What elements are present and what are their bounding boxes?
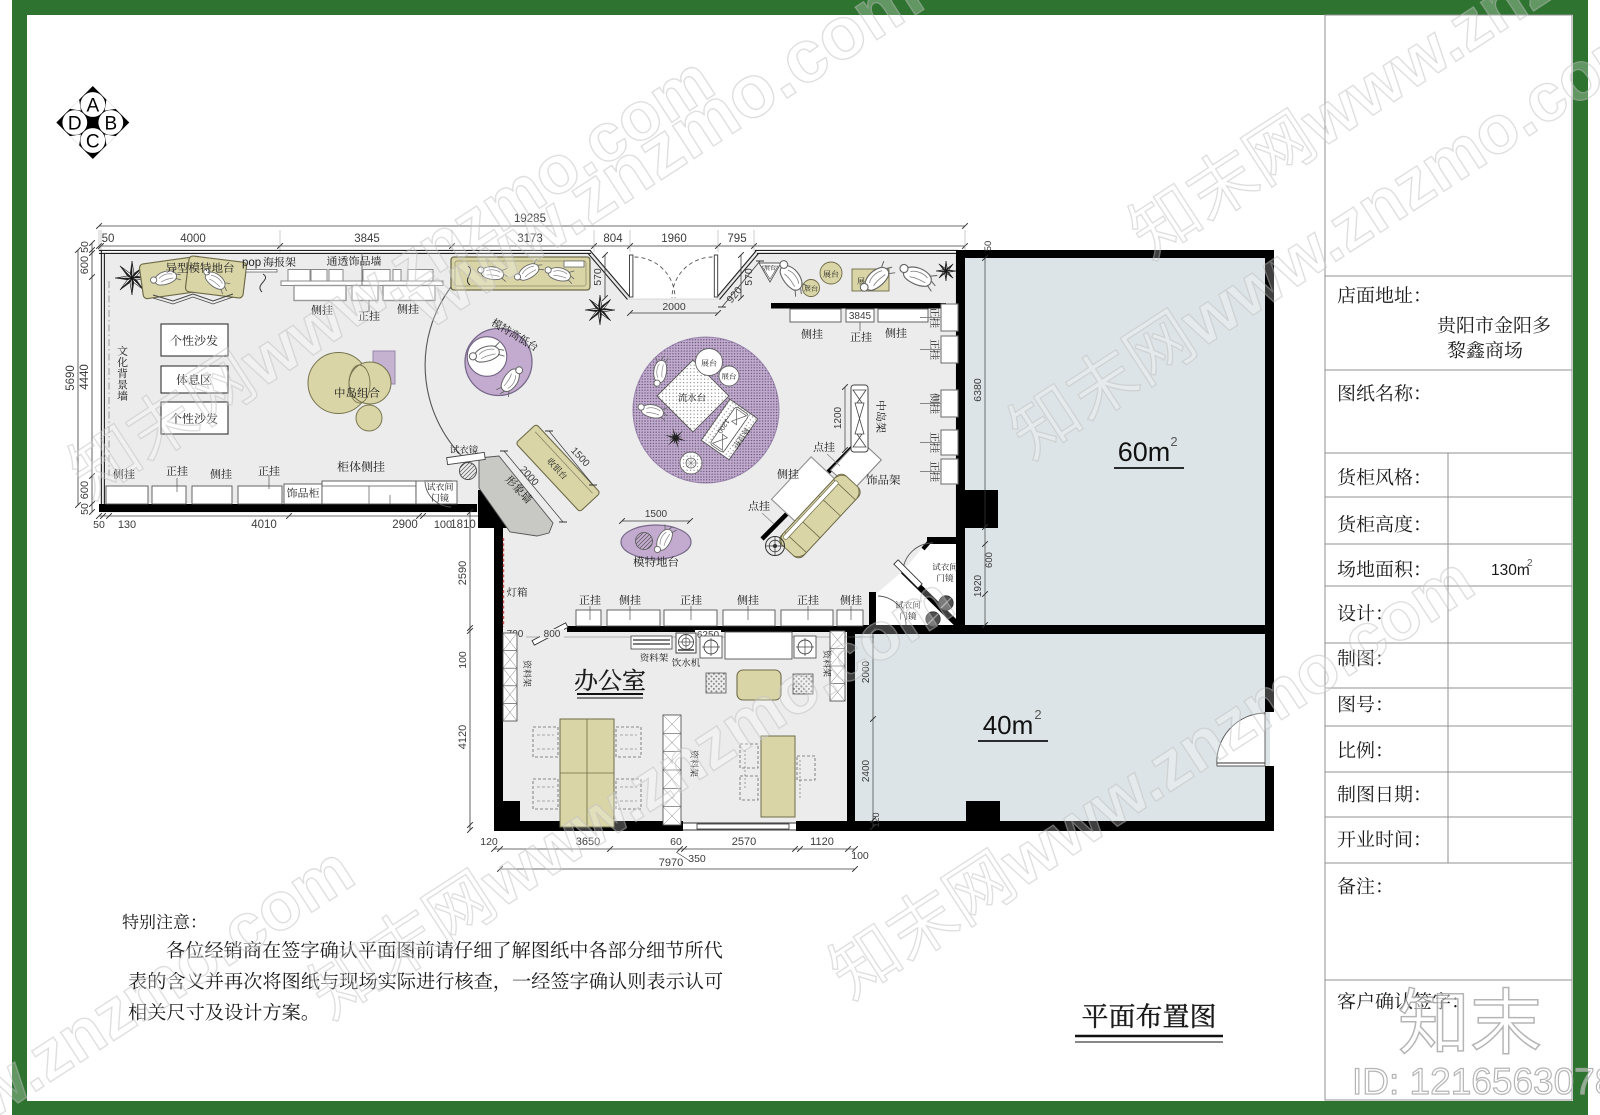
svg-text:130m: 130m (1491, 562, 1530, 579)
svg-text:4440: 4440 (79, 364, 91, 390)
svg-text:1500: 1500 (645, 509, 668, 520)
svg-text:40m: 40m (983, 710, 1034, 740)
svg-text:4120: 4120 (457, 725, 469, 749)
svg-text:7970: 7970 (659, 857, 683, 869)
svg-text:D: D (68, 113, 82, 134)
svg-text:795: 795 (727, 233, 746, 245)
svg-text:2: 2 (1527, 558, 1533, 569)
svg-text:100: 100 (457, 651, 469, 669)
svg-text:2000: 2000 (662, 301, 686, 313)
svg-text:60: 60 (670, 836, 682, 848)
svg-text:50: 50 (79, 241, 91, 253)
svg-text:600: 600 (79, 481, 91, 499)
svg-text:600: 600 (984, 552, 995, 568)
svg-text:350: 350 (688, 853, 706, 865)
svg-text:50: 50 (79, 503, 91, 515)
svg-text:50: 50 (983, 241, 994, 252)
svg-text:1960: 1960 (661, 233, 687, 245)
svg-text:1920: 1920 (973, 574, 984, 597)
svg-text:2900: 2900 (392, 519, 418, 531)
svg-text:600: 600 (79, 256, 91, 274)
svg-text:804: 804 (603, 233, 623, 245)
svg-text:A: A (86, 95, 99, 116)
svg-text:570: 570 (743, 268, 755, 286)
svg-text:2570: 2570 (732, 836, 756, 848)
svg-text:1120: 1120 (810, 836, 834, 848)
svg-text:B: B (104, 113, 117, 134)
svg-text:130: 130 (118, 519, 136, 531)
svg-text:570: 570 (592, 268, 604, 286)
svg-text:2400: 2400 (861, 759, 872, 782)
svg-text:2590: 2590 (457, 561, 469, 585)
svg-text:120: 120 (871, 812, 881, 827)
svg-text:1810: 1810 (450, 519, 476, 531)
svg-text:100: 100 (851, 850, 869, 862)
svg-text:4010: 4010 (251, 519, 277, 531)
svg-text:1200: 1200 (833, 406, 844, 429)
svg-text:800: 800 (544, 629, 561, 640)
svg-text:50: 50 (102, 233, 115, 245)
svg-text:ID: 1216563078: ID: 1216563078 (1352, 1061, 1600, 1102)
svg-text:60m: 60m (1118, 437, 1171, 467)
svg-text:pop: pop (242, 257, 261, 269)
svg-text:5690: 5690 (65, 365, 77, 391)
svg-text:50: 50 (93, 519, 105, 531)
svg-text:2: 2 (1034, 707, 1041, 722)
svg-text:4000: 4000 (180, 233, 206, 245)
svg-text:2: 2 (1170, 434, 1177, 449)
svg-text:6380: 6380 (972, 378, 984, 402)
svg-text:C: C (86, 131, 100, 152)
svg-text:3845: 3845 (849, 311, 872, 322)
